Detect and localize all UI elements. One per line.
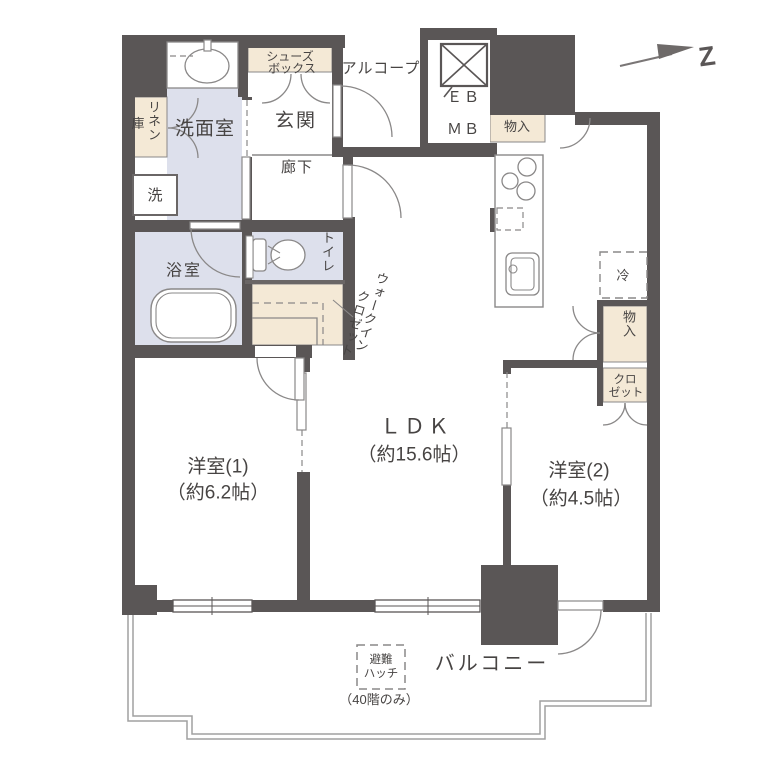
wash-basin-icon [185,49,229,83]
storage-right-door-arc [573,333,600,360]
washer-label: 洗 [147,188,162,204]
western1-door-leaf [295,358,304,400]
stove-burner-icon [502,173,518,189]
elevator-box-label: ＥＢ [447,90,481,106]
balcony-label: バルコニー [435,654,550,676]
wall-western1-ldk [297,472,310,612]
stove-burner-icon [517,182,535,200]
wall-storage-right-top [597,300,647,306]
shoebox-door-arc [301,74,330,103]
storage-right-door-arc [573,306,600,333]
pillar-bottom-left [122,585,157,615]
wall-western2-top [503,360,603,368]
linen-label-main: リネン [144,100,163,142]
floor-plan: 洗面室 玄関 廊下 アルコープ シューズ ボックス リネン 庫 洗 浴室 トイレ… [0,0,780,780]
washroom-slider-gap [242,100,252,157]
closet-label-1: クロ [614,374,637,386]
wall-shaft-bottom [420,143,497,155]
western1-door-arc [257,358,299,400]
shoes-box-label-2: ボックス [268,63,316,76]
pillar-balcony [481,565,558,645]
closet-door-arc [603,403,625,425]
corridor-label: 廊下 [281,160,313,176]
meter-box-label: ＭＢ [447,122,481,138]
entrance-door-arc [341,86,392,137]
toilet-tank [253,239,266,271]
bathroom-label: 浴室 [166,262,202,279]
alcove-label: アルコープ [342,61,421,77]
western1-size-label: （約6.2帖） [167,484,269,505]
wall-toilet-wic-divider [245,280,345,284]
ldk-size-label: （約15.6帖） [358,446,471,467]
wall-mass-sink-left [132,42,167,97]
corridor-door-leaf [343,165,352,218]
corridor-door-arc [348,165,401,218]
compass-arrow-icon [657,44,694,59]
linen-label-sub: 庫 [131,117,144,131]
hatch-label-1: 避難 [370,654,393,666]
faucet-icon [204,40,211,51]
wall-shaft-left [420,28,428,155]
wall-sink-shoebox [238,42,248,97]
hatch-label-2: ハッチ [364,668,399,680]
wall-shaft-top [420,28,497,40]
toilet-bowl-icon [271,240,305,270]
walk-in-closet-area [252,284,343,345]
wall-bottom-seg3 [603,600,660,612]
room-washroom [167,88,242,220]
western2-size-label: （約4.5帖） [530,490,632,511]
window [375,597,480,615]
bathtub-icon [151,289,236,342]
hatch-note-label: （40階のみ） [339,693,418,707]
compass [620,44,694,66]
wall-bottom-seg1 [157,600,173,612]
entrance-door-leaf [333,85,341,137]
toilet-door-leaf [246,236,253,278]
toilet-label: トイレ [318,231,337,273]
storage-right-label: 物入 [619,310,638,338]
window [173,597,252,615]
western2-slider-leaf [502,428,511,485]
refrigerator-label: 冷 [616,269,629,283]
counter-dashed-box [497,208,523,230]
shoebox-door-arc [262,74,291,103]
storage-top-label: 物入 [504,120,530,134]
western1-label: 洋室(1) [187,458,248,479]
washroom-label: 洗面室 [175,120,235,141]
washroom-slider-leaf [242,157,250,219]
closet-label-2: ゼット [609,387,644,399]
wall-mass-top-right [490,35,575,115]
entrance-label: 玄関 [275,112,317,133]
western1-door-gap [255,346,296,357]
closet-door-arc [625,403,647,425]
stove-burner-icon [518,158,536,176]
wall-bottom-seg2 [252,600,375,612]
wall-corridor-ldk-stub [343,157,353,165]
western2-label: 洋室(2) [548,462,609,483]
ldk-label: ＬＤＫ [380,417,452,440]
balcony-door-leaf [558,601,603,610]
bathroom-door-leaf [190,222,240,229]
wall-right [647,112,660,612]
wall-closet-left [597,366,603,406]
balcony-door-arc [558,610,601,654]
